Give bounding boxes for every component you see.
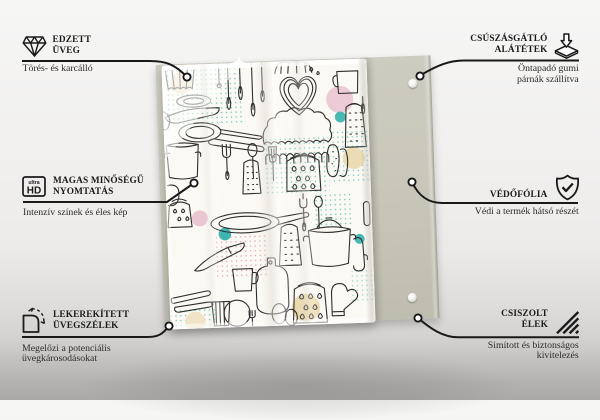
svg-text:HD: HD [27, 185, 41, 196]
